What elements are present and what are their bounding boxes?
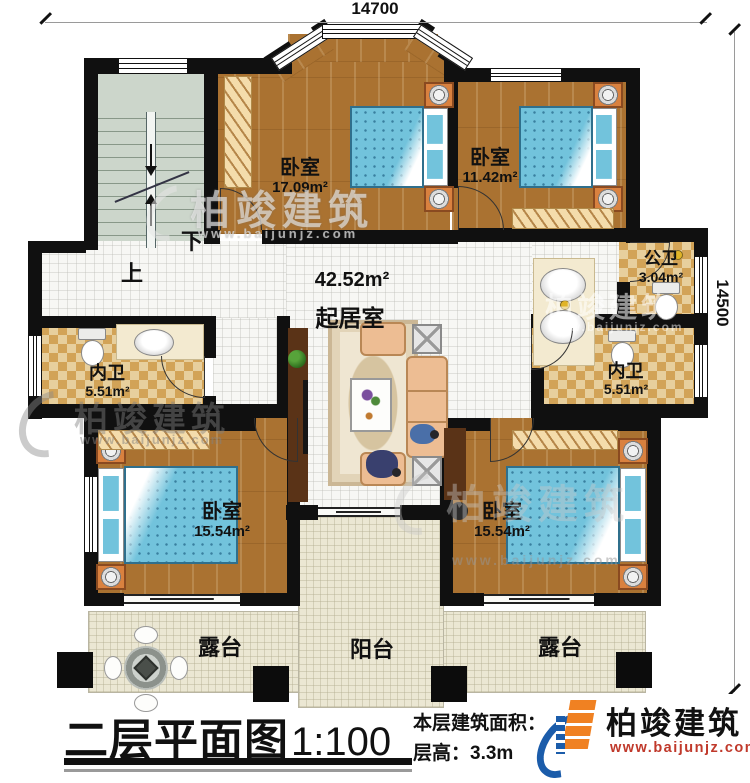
- window: [84, 476, 98, 553]
- column: [253, 666, 289, 702]
- room-area: 17.09m²: [240, 180, 360, 196]
- wardrobe-bedroom3: [98, 430, 210, 450]
- sink: [540, 268, 586, 302]
- window: [490, 68, 562, 82]
- room-label: 卧室: [442, 502, 562, 523]
- room-label: 公卫: [625, 250, 697, 268]
- floor-height-value: 3.3m: [470, 743, 513, 764]
- side-table: [412, 324, 442, 354]
- wall-segment: [84, 58, 98, 250]
- wall-segment: [531, 404, 708, 418]
- balcony-floor: [298, 516, 444, 708]
- wall-segment: [203, 396, 216, 418]
- outdoor-chair: [104, 656, 122, 680]
- room-area: 5.51m²: [576, 382, 676, 397]
- room-area: 5.51m²: [60, 384, 155, 399]
- room-label: 内卫: [62, 364, 152, 383]
- stair-arrow-up: [145, 194, 157, 204]
- wall-segment: [594, 593, 661, 606]
- stair-arrow-down: [145, 166, 157, 176]
- title-underline: [64, 758, 412, 765]
- wall-segment: [626, 68, 640, 243]
- sliding-door-terrace-right: [484, 594, 594, 604]
- room-label: 卧室: [430, 148, 550, 169]
- wall-segment: [28, 404, 284, 418]
- wall-segment: [204, 58, 218, 234]
- sink: [134, 329, 174, 356]
- room-label: 内卫: [578, 362, 673, 381]
- room-area: 15.54m²: [442, 524, 562, 540]
- wall-segment: [286, 505, 318, 520]
- room-label: 起居室: [288, 306, 412, 330]
- window: [28, 335, 42, 397]
- corridor-floor: [213, 318, 279, 410]
- room-area: 42.52m²: [290, 270, 414, 291]
- company-logo: 柏竣建筑 www.baijunjz.com: [540, 694, 748, 780]
- nightstand: [593, 82, 623, 108]
- wall-segment: [84, 58, 118, 74]
- outdoor-chair: [170, 656, 188, 680]
- stair-down-label: 下: [172, 230, 212, 253]
- room-label: 阳台: [312, 638, 432, 661]
- floor-height-row: 层高：3.3m: [413, 738, 513, 765]
- plant: [288, 350, 306, 368]
- wall-segment: [262, 230, 458, 244]
- stair-up-label: 上: [112, 262, 152, 285]
- wall-segment: [440, 593, 484, 606]
- wall-segment: [400, 505, 442, 520]
- desk-bedroom4: [444, 428, 466, 500]
- nightstand: [96, 564, 126, 590]
- wall-segment: [28, 241, 86, 253]
- wall-segment: [203, 316, 216, 358]
- tv-screen: [303, 380, 308, 454]
- bay-window-top: [322, 24, 422, 39]
- stair-arrow-line: [150, 144, 152, 166]
- dimension-top: 14700: [315, 0, 435, 18]
- wardrobe-bedroom2: [512, 208, 614, 229]
- coffee-table: [350, 378, 392, 432]
- nightstand: [618, 564, 648, 590]
- column: [431, 666, 467, 702]
- bed-headboard: [620, 468, 646, 562]
- room-area: 11.42m²: [430, 170, 550, 186]
- logo-website: www.baijunjz.com: [610, 740, 750, 756]
- stair-rail: [146, 112, 156, 248]
- dimension-line-top: [45, 22, 707, 23]
- sliding-door-balcony: [318, 507, 400, 517]
- nightstand: [424, 82, 454, 108]
- column: [616, 652, 652, 688]
- bed-bedroom1: [350, 106, 424, 188]
- title-underline-thin: [64, 769, 412, 772]
- outdoor-chair: [134, 626, 158, 644]
- column: [57, 652, 93, 688]
- room-label: 卧室: [162, 502, 282, 523]
- window: [694, 344, 708, 398]
- side-table: [412, 456, 442, 486]
- floor-area-label: 本层建筑面积：: [413, 713, 546, 734]
- dimension-line-right: [734, 32, 735, 692]
- room-label: 露台: [160, 636, 280, 659]
- bed-headboard: [591, 108, 617, 186]
- wall-segment: [240, 593, 300, 606]
- person-head: [430, 430, 439, 439]
- stair-arrow-line2: [150, 204, 152, 226]
- wall-segment: [84, 593, 124, 606]
- wall-segment: [444, 68, 490, 82]
- toilet-tank: [608, 330, 636, 342]
- toilet-bowl: [655, 294, 678, 320]
- room-area: 3.04m²: [625, 270, 697, 285]
- nightstand: [424, 186, 454, 212]
- wall-segment: [458, 228, 640, 242]
- sliding-door-terrace-left: [124, 594, 240, 604]
- light-pull: [560, 300, 570, 310]
- wall-segment: [647, 418, 661, 606]
- room-area: 15.54m²: [162, 524, 282, 540]
- floor-height-label: 层高：: [413, 743, 470, 764]
- logo-name: 柏竣建筑: [606, 698, 742, 743]
- room-label: 露台: [500, 636, 620, 659]
- logo-tower-icon: [556, 716, 565, 754]
- wall-segment: [694, 328, 708, 344]
- nightstand: [618, 438, 648, 464]
- floor-plan: 卧室 17.09m² 卧室 11.42m² 公卫 3.04m² 内卫 5.51m…: [0, 0, 750, 783]
- toilet-tank: [78, 328, 106, 340]
- dimension-right: 14500: [713, 268, 731, 338]
- bed-headboard: [98, 468, 124, 562]
- window: [118, 58, 188, 74]
- room-label: 卧室: [240, 158, 360, 179]
- person-head: [392, 468, 401, 477]
